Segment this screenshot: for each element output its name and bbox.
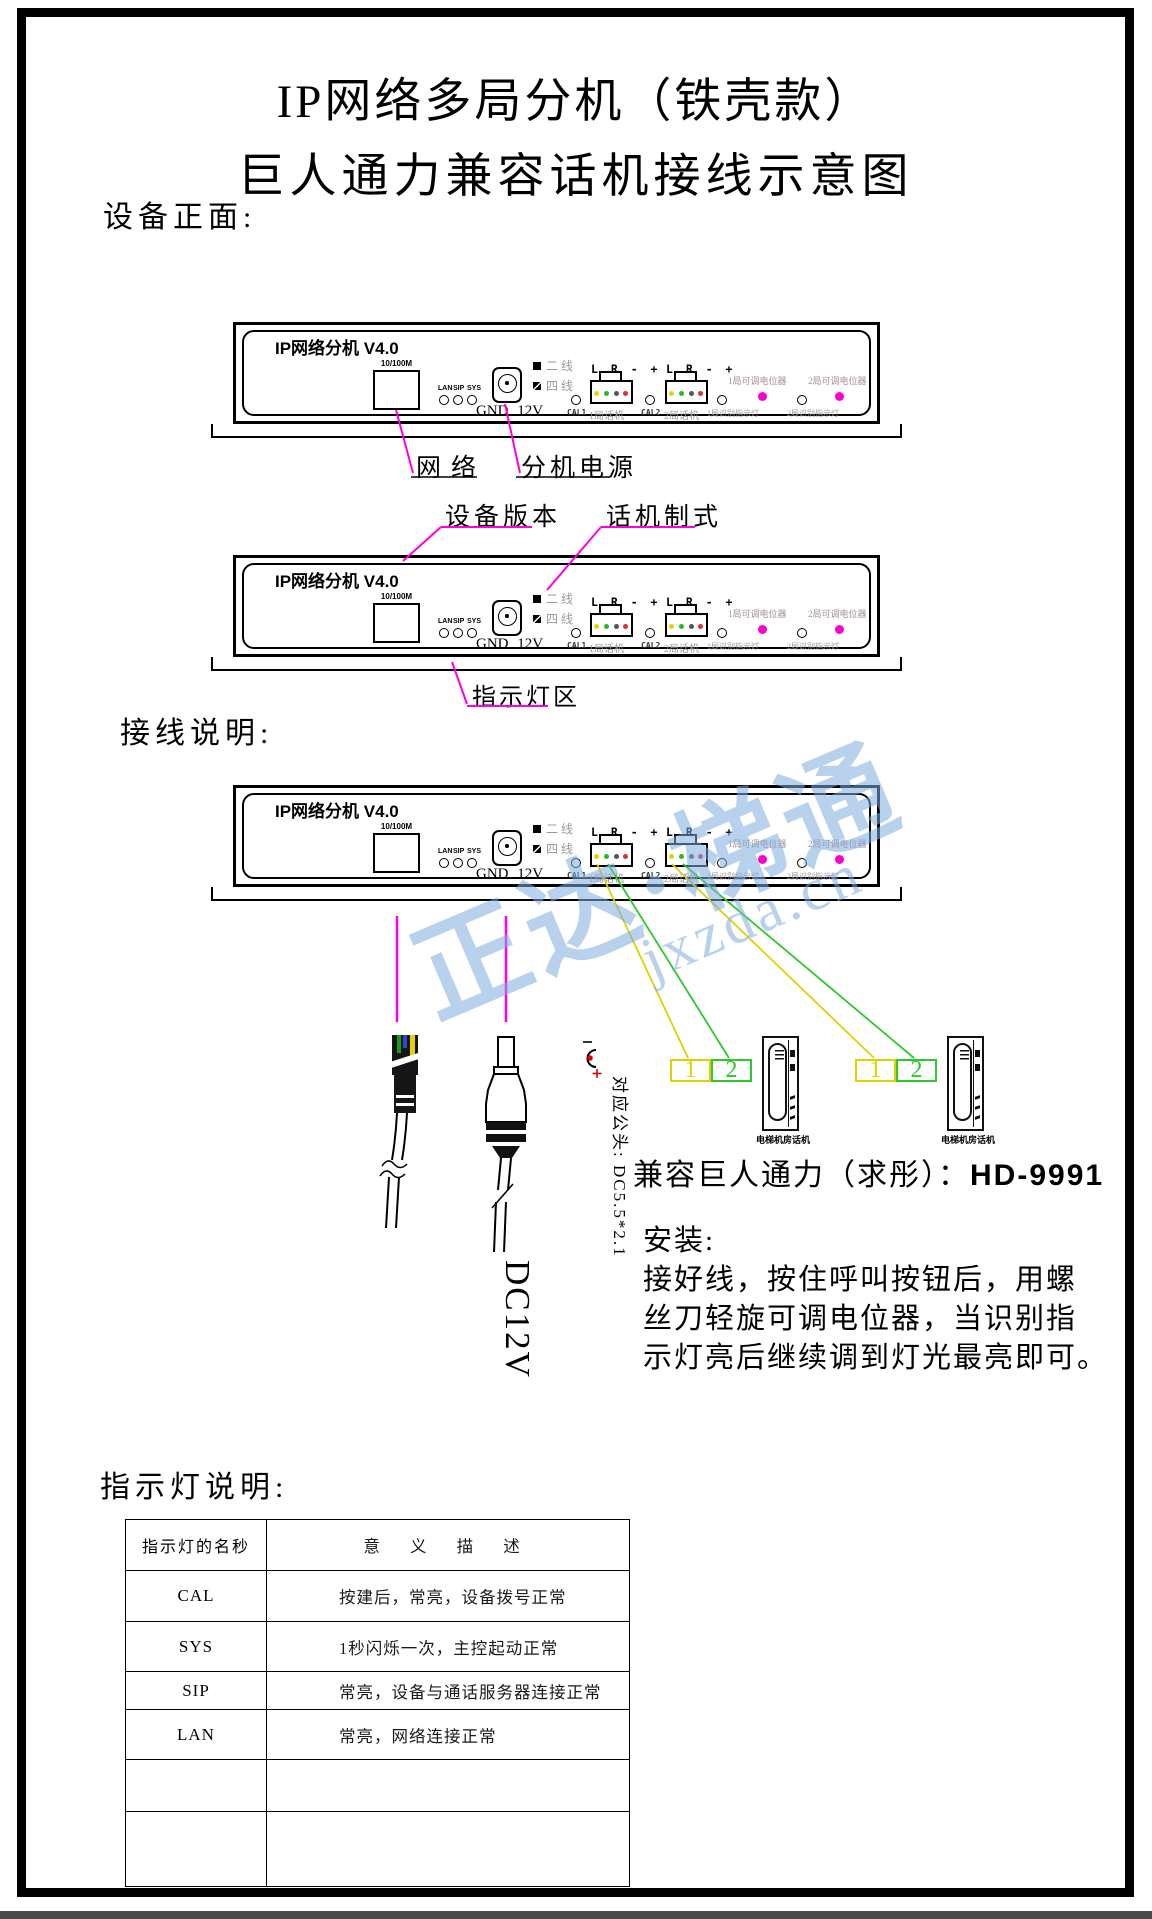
line2-id-led xyxy=(797,628,807,638)
sip-led xyxy=(453,628,463,638)
two-wire-mode: 二 线 xyxy=(533,820,573,837)
line2-phone-connector xyxy=(665,834,708,867)
device-model-label: IP网络分机 V4.0 xyxy=(275,567,399,592)
speaker-grille xyxy=(960,1050,969,1060)
section-heading-wiring: 接线说明: xyxy=(120,708,273,752)
row-desc: 按建后，常亮，设备拨号正常 xyxy=(267,1571,629,1621)
cal2-led xyxy=(645,858,655,868)
install-line: 示灯亮后继续调到灯光最亮即可。 xyxy=(643,1339,1108,1378)
line2-potentiometer xyxy=(835,625,844,634)
compatibility-text: 兼容巨人通力（求彤）：HD-9991 xyxy=(633,1150,1104,1194)
handset xyxy=(953,1043,972,1121)
terminal2-cell2: 2 xyxy=(896,1059,937,1082)
lan-led-label: LAN xyxy=(438,848,452,855)
two-wire-square-icon xyxy=(533,825,541,833)
four-wire-label: 四 线 xyxy=(546,610,573,627)
plug-spec-note: 对应公头: DC5.5*2.1 xyxy=(609,1076,634,1258)
line1-phone-label: 1局话机 xyxy=(589,640,624,655)
header-desc: 意 义 描 述 xyxy=(267,1520,629,1570)
side-tick xyxy=(790,1115,795,1120)
two-wire-mode: 二 线 xyxy=(533,357,573,374)
jack-center-pin xyxy=(505,844,509,848)
compat-phrase: 兼容巨人通力（求彤）： xyxy=(633,1159,970,1192)
cal2-label: CAL2 xyxy=(641,408,660,417)
annotation-led-zone: 指示灯区 xyxy=(472,677,580,712)
page-title-line1: IP网络多局分机（铁壳款） xyxy=(17,62,1134,131)
row-name: CAL xyxy=(126,1571,267,1621)
four-wire-mode: 四 线 xyxy=(533,840,573,857)
pin-plus xyxy=(623,854,628,859)
side-block xyxy=(975,1064,980,1071)
table-header-row: 指示灯的名秒 意 义 描 述 xyxy=(126,1520,629,1571)
annotation-phone-mode: 话机制式 xyxy=(606,497,722,533)
two-wire-square-icon xyxy=(533,595,541,603)
pin-plus xyxy=(698,391,703,396)
sip-led-label: SIP xyxy=(453,848,464,855)
line1-id-label: 1局识别指示灯 xyxy=(707,871,759,882)
cal1-label: CAL1 xyxy=(567,871,586,880)
pin-r-green xyxy=(604,624,609,629)
table-row: CAL 按建后，常亮，设备拨号正常 xyxy=(126,1571,629,1622)
cal2-led xyxy=(645,628,655,638)
two-wire-mode: 二 线 xyxy=(533,590,573,607)
lan-led xyxy=(439,395,449,405)
four-wire-mode: 四 线 xyxy=(533,610,573,627)
cal1-led xyxy=(571,858,581,868)
pin-minus xyxy=(689,624,694,629)
side-block xyxy=(975,1050,980,1057)
pin-r-green xyxy=(679,624,684,629)
line2-phone-label: 2局话机 xyxy=(664,407,699,422)
pin-l-yellow xyxy=(594,624,599,629)
terminal1-cell1: 1 xyxy=(670,1059,711,1082)
lan-led xyxy=(439,858,449,868)
phone-side xyxy=(973,1040,974,1127)
line1-phone-connector xyxy=(590,604,633,637)
compat-model: HD-9991 xyxy=(970,1159,1104,1192)
side-block xyxy=(790,1050,795,1057)
install-title: 安装: xyxy=(643,1222,1108,1261)
cal1-label: CAL1 xyxy=(567,408,586,417)
pin-minus xyxy=(614,624,619,629)
line2-pot-label: 2局可调电位器 xyxy=(808,374,867,387)
terminal1-cell2: 2 xyxy=(711,1059,752,1082)
ethernet-speed-label: 10/100M xyxy=(373,592,420,601)
section-heading-leds: 指示灯说明: xyxy=(100,1462,288,1506)
four-wire-square-icon xyxy=(533,615,541,623)
two-wire-label: 二 线 xyxy=(546,590,573,607)
line2-pot-label: 2局可调电位器 xyxy=(808,607,867,620)
handset xyxy=(768,1043,787,1121)
sys-led-label: SYS xyxy=(467,385,481,392)
two-wire-square-icon xyxy=(533,362,541,370)
machine-room-phone-1 xyxy=(762,1036,799,1131)
speaker-grille xyxy=(775,1050,784,1060)
section-heading-front: 设备正面: xyxy=(103,192,256,236)
row-desc xyxy=(267,1812,629,1886)
row-name xyxy=(126,1812,267,1886)
line2-phone-connector xyxy=(665,604,708,637)
pin-l-yellow xyxy=(594,391,599,396)
led-table: 指示灯的名秒 意 义 描 述 CAL 按建后，常亮，设备拨号正常 SYS 1秒闪… xyxy=(125,1519,630,1887)
row-name: SYS xyxy=(126,1622,267,1671)
phone-side xyxy=(788,1040,789,1127)
annotation-version: 设备版本 xyxy=(445,497,561,533)
rj45-plug-head xyxy=(392,1035,418,1075)
four-wire-label: 四 线 xyxy=(546,377,573,394)
pin-l-yellow xyxy=(669,854,674,859)
line1-phone-connector xyxy=(590,834,633,867)
line1-potentiometer xyxy=(758,855,767,864)
pin-plus xyxy=(623,624,628,629)
phone1-label: 电梯机房话机 xyxy=(756,1133,808,1146)
table-row: LAN 常亮，网络连接正常 xyxy=(126,1710,629,1760)
wiring-diagram-page: IP网络多局分机（铁壳款） 巨人通力兼容话机接线示意图 设备正面: 接线说明: … xyxy=(0,0,1152,1919)
rj45-plug-drawing xyxy=(392,1035,418,1113)
cal1-led xyxy=(571,395,581,405)
lan-led-label: LAN xyxy=(438,385,452,392)
row-name: LAN xyxy=(126,1710,267,1759)
cal1-led xyxy=(571,628,581,638)
wire-green xyxy=(397,1035,401,1053)
four-wire-label: 四 线 xyxy=(546,840,573,857)
line2-phone-label: 2局话机 xyxy=(664,870,699,885)
line1-phone-connector xyxy=(590,371,633,404)
pin-l-yellow xyxy=(669,391,674,396)
bottom-gray-bar xyxy=(0,1911,1152,1919)
ethernet-speed-label: 10/100M xyxy=(373,359,420,368)
line1-id-led xyxy=(717,858,727,868)
sys-led-label: SYS xyxy=(467,618,481,625)
side-tick xyxy=(975,1115,980,1120)
annotation-network: 网络 xyxy=(416,448,486,484)
rj45-latch xyxy=(392,1052,418,1069)
line1-pot-label: 1局可调电位器 xyxy=(728,837,787,850)
pin-plus xyxy=(698,624,703,629)
boot-line xyxy=(396,1103,414,1106)
line1-potentiometer xyxy=(758,625,767,634)
line1-id-led xyxy=(717,628,727,638)
device-panel-2: IP网络分机 V4.0 10/100M LAN SIP SYS GND 12V … xyxy=(233,555,880,657)
sip-led-label: SIP xyxy=(453,385,464,392)
pin-r-green xyxy=(604,391,609,396)
power-pinout-label: GND 12V xyxy=(476,636,540,653)
device-base-flange xyxy=(211,887,902,901)
terminal2-cell1: 1 xyxy=(855,1059,896,1082)
pin-minus xyxy=(614,854,619,859)
row-desc xyxy=(267,1760,629,1811)
row-name xyxy=(126,1760,267,1811)
cal2-led xyxy=(645,395,655,405)
row-desc: 常亮，设备与通话服务器连接正常 xyxy=(267,1672,629,1709)
device-panel-3: IP网络分机 V4.0 10/100M LAN SIP SYS GND 12V … xyxy=(233,785,880,887)
header-name: 指示灯的名秒 xyxy=(126,1520,267,1570)
line2-id-led xyxy=(797,395,807,405)
line2-id-label: 2局识别指示灯 xyxy=(787,641,839,652)
device-base-flange xyxy=(211,657,902,671)
device-model-label: IP网络分机 V4.0 xyxy=(275,334,399,359)
line1-id-label: 1局识别指示灯 xyxy=(707,641,759,652)
line1-pot-label: 1局可调电位器 xyxy=(728,374,787,387)
jack-center-pin xyxy=(505,614,509,618)
four-wire-square-icon xyxy=(533,382,541,390)
pin-plus xyxy=(623,391,628,396)
dc-power-jack xyxy=(492,600,522,636)
ethernet-port xyxy=(373,833,420,873)
table-row-empty xyxy=(126,1812,629,1886)
title-block: IP网络多局分机（铁壳款） 巨人通力兼容话机接线示意图 xyxy=(17,0,1134,206)
jack-center-pin xyxy=(505,381,509,385)
pin-minus xyxy=(689,391,694,396)
cal1-label: CAL1 xyxy=(567,641,586,650)
device-panel-1: IP网络分机 V4.0 10/100M LAN SIP SYS GND 12V … xyxy=(233,322,880,424)
dc-power-jack xyxy=(492,830,522,866)
side-tick xyxy=(975,1105,980,1110)
power-pinout-label: GND 12V xyxy=(476,403,540,420)
pin-r-green xyxy=(604,854,609,859)
row-desc: 1秒闪烁一次，主控起动正常 xyxy=(267,1622,629,1671)
line1-id-label: 1局识别指示灯 xyxy=(707,408,759,419)
rj45-boot xyxy=(394,1075,416,1113)
pin-minus xyxy=(689,854,694,859)
row-name: SIP xyxy=(126,1672,267,1709)
machine-room-phone-2 xyxy=(947,1036,984,1131)
line2-potentiometer xyxy=(835,392,844,401)
line1-pot-label: 1局可调电位器 xyxy=(728,607,787,620)
ethernet-speed-label: 10/100M xyxy=(373,822,420,831)
line1-phone-label: 1局话机 xyxy=(589,870,624,885)
line2-phone-label: 2局话机 xyxy=(664,640,699,655)
pin-r-green xyxy=(679,854,684,859)
cal2-label: CAL2 xyxy=(641,871,660,880)
line2-id-led xyxy=(797,858,807,868)
phone2-label: 电梯机房话机 xyxy=(941,1133,993,1146)
cal2-label: CAL2 xyxy=(641,641,660,650)
boot-line xyxy=(396,1095,414,1098)
device-model-label: IP网络分机 V4.0 xyxy=(275,797,399,822)
side-tick xyxy=(975,1095,980,1100)
side-tick xyxy=(790,1105,795,1110)
dc12v-label: DC12V xyxy=(497,1260,537,1379)
side-block xyxy=(790,1064,795,1071)
line2-potentiometer xyxy=(835,855,844,864)
table-row: SYS 1秒闪烁一次，主控起动正常 xyxy=(126,1622,629,1672)
lan-led-label: LAN xyxy=(438,618,452,625)
line2-pot-label: 2局可调电位器 xyxy=(808,837,867,850)
side-tick xyxy=(790,1095,795,1100)
install-instructions: 安装: 接好线，按住呼叫按钮后，用螺 丝刀轻旋可调电位器，当识别指 示灯亮后继续… xyxy=(643,1222,1108,1378)
sip-led xyxy=(453,858,463,868)
pin-plus xyxy=(698,854,703,859)
line1-potentiometer xyxy=(758,392,767,401)
two-wire-label: 二 线 xyxy=(546,820,573,837)
sip-led-label: SIP xyxy=(453,618,464,625)
line2-id-label: 2局识别指示灯 xyxy=(787,408,839,419)
four-wire-mode: 四 线 xyxy=(533,377,573,394)
pin-minus xyxy=(614,391,619,396)
ethernet-port xyxy=(373,370,420,410)
install-line: 接好线，按住呼叫按钮后，用螺 xyxy=(643,1261,1108,1300)
table-row: SIP 常亮，设备与通话服务器连接正常 xyxy=(126,1672,629,1710)
ethernet-port xyxy=(373,603,420,643)
two-wire-label: 二 线 xyxy=(546,357,573,374)
pin-r-green xyxy=(679,391,684,396)
row-desc: 常亮，网络连接正常 xyxy=(267,1710,629,1759)
install-line: 丝刀轻旋可调电位器，当识别指 xyxy=(643,1300,1108,1339)
dc-power-jack xyxy=(492,367,522,403)
line1-id-led xyxy=(717,395,727,405)
annotation-power: 分机电源 xyxy=(521,448,637,484)
sip-led xyxy=(453,395,463,405)
power-pinout-label: GND 12V xyxy=(476,866,540,883)
sys-led-label: SYS xyxy=(467,848,481,855)
four-wire-square-icon xyxy=(533,845,541,853)
line2-phone-connector xyxy=(665,371,708,404)
line2-id-label: 2局识别指示灯 xyxy=(787,871,839,882)
pin-l-yellow xyxy=(669,624,674,629)
lan-led xyxy=(439,628,449,638)
device-base-flange xyxy=(211,424,902,438)
table-row-empty xyxy=(126,1760,629,1812)
pin-l-yellow xyxy=(594,854,599,859)
wire-blue xyxy=(403,1035,407,1048)
line1-phone-label: 1局话机 xyxy=(589,407,624,422)
